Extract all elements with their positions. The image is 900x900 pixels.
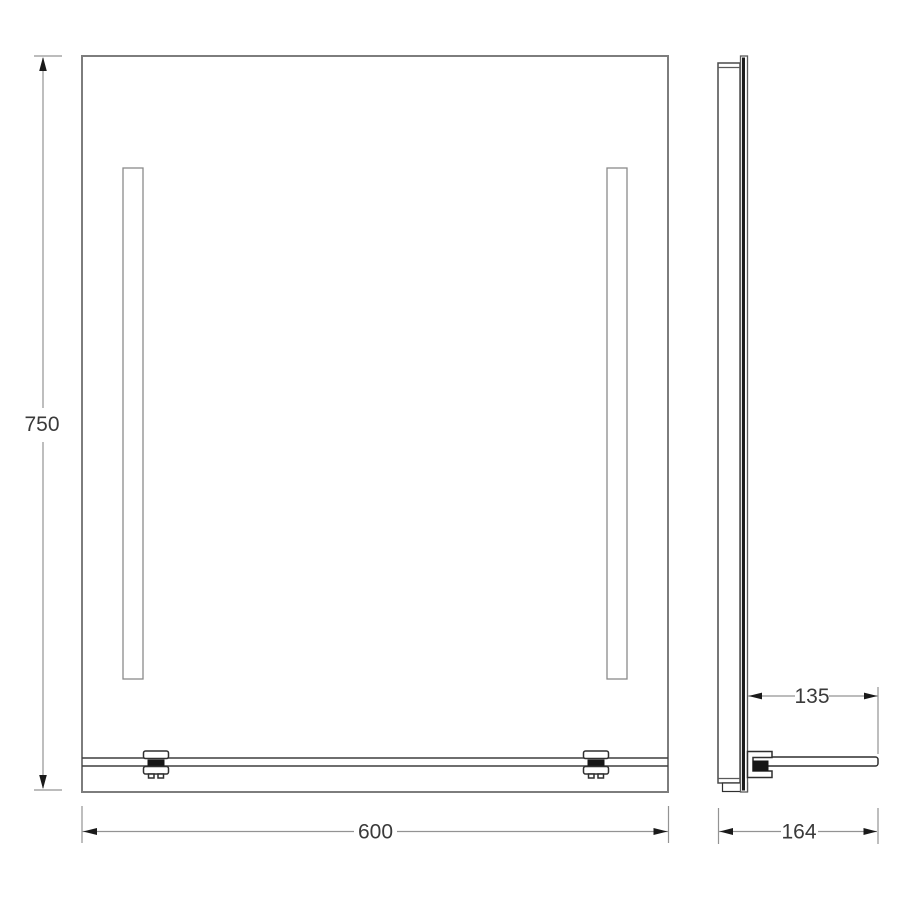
dimension-label-shelf-depth: 135 (794, 685, 829, 708)
bracket-top-cap (584, 751, 609, 759)
mirror-body-profile (718, 63, 740, 783)
technical-drawing: 750 600 135 164 (0, 0, 900, 900)
bracket-foot (158, 774, 164, 778)
bracket-foot (589, 774, 595, 778)
arrow-right-icon (654, 828, 668, 835)
front-view (82, 56, 668, 792)
dimension-label-overall-depth: 164 (781, 821, 816, 844)
dimension-width: 600 (82, 806, 669, 844)
bracket-foot (149, 774, 155, 778)
shelf-side-profile (751, 757, 878, 766)
bracket-bottom-cap (144, 767, 169, 775)
dimension-height: 750 (24, 56, 62, 790)
led-strip-right (607, 168, 627, 679)
clamp-pad (753, 761, 769, 772)
drawing-canvas: 750 600 135 164 (0, 0, 900, 900)
arrow-right-icon (864, 828, 878, 835)
arrow-up-icon (39, 57, 47, 71)
arrow-down-icon (39, 775, 47, 789)
side-view (718, 56, 878, 792)
bracket-foot (598, 774, 604, 778)
dimension-label-width: 600 (358, 821, 393, 844)
arrow-left-icon (749, 693, 763, 700)
led-strip-left (123, 168, 143, 679)
dimension-overall-depth: 164 (719, 808, 879, 844)
arrow-right-icon (864, 693, 878, 700)
mirror-outline (82, 56, 668, 792)
arrow-left-icon (720, 828, 734, 835)
dimension-shelf-depth: 135 (748, 685, 878, 754)
bracket-top-cap (144, 751, 169, 759)
arrow-left-icon (83, 828, 97, 835)
shelf-clamp-side (748, 752, 773, 778)
dimension-label-height: 750 (24, 413, 59, 436)
bracket-bottom-cap (584, 767, 609, 775)
